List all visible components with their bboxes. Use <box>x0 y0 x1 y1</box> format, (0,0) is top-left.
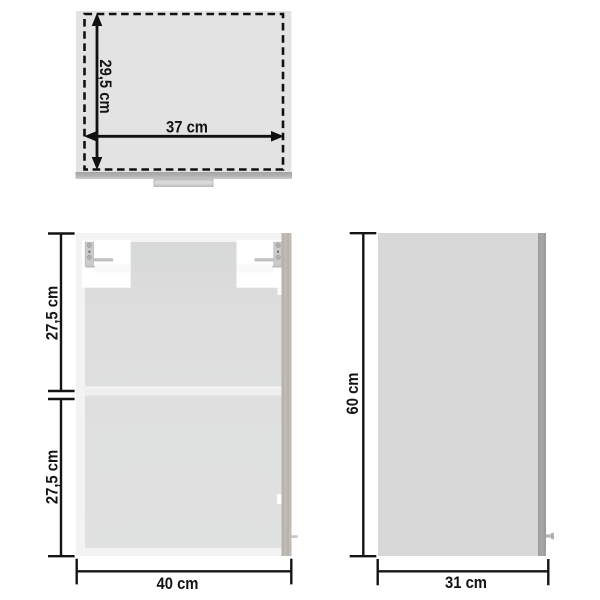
svg-text:27,5 cm: 27,5 cm <box>44 286 62 340</box>
svg-text:40 cm: 40 cm <box>157 575 199 593</box>
svg-text:60 cm: 60 cm <box>344 373 362 415</box>
svg-text:29,5 cm: 29,5 cm <box>96 59 114 113</box>
svg-text:31 cm: 31 cm <box>445 574 487 592</box>
svg-text:27,5 cm: 27,5 cm <box>44 450 62 504</box>
svg-text:37 cm: 37 cm <box>166 119 208 137</box>
